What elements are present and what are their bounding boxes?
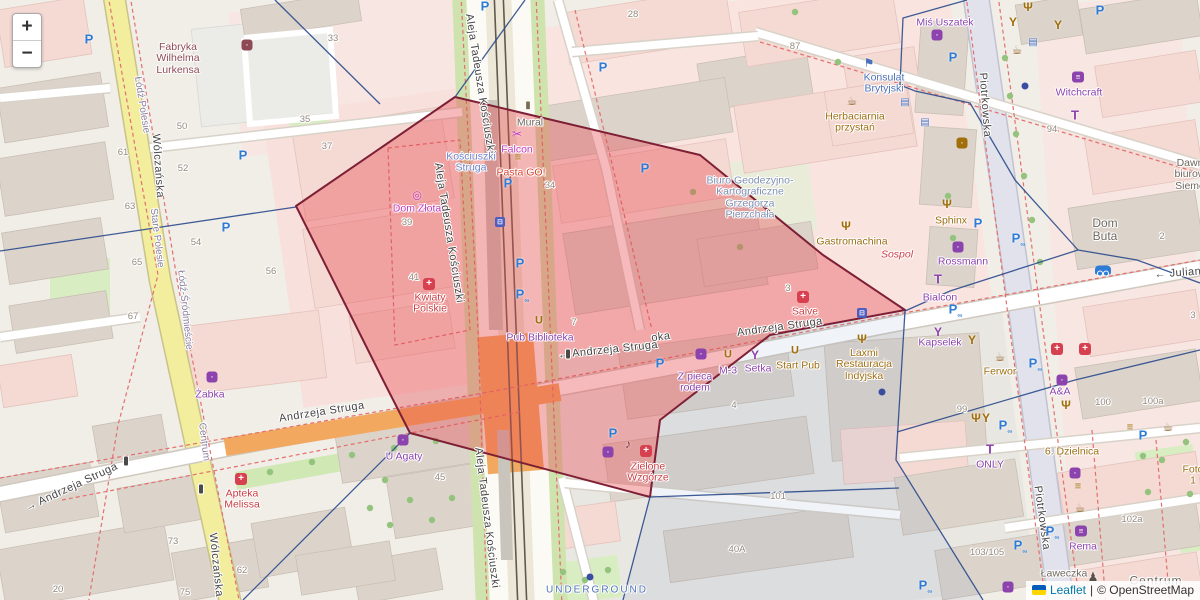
housenumber-label: 4 bbox=[731, 401, 736, 411]
housenumber-label: 87 bbox=[790, 42, 801, 52]
zoom-in-button[interactable]: + bbox=[13, 14, 41, 41]
admin-boundary-label: Stare Polesie bbox=[147, 208, 165, 268]
poi-label: Żabka bbox=[195, 389, 224, 400]
poi-label: Zielone Wzgórze bbox=[627, 462, 668, 485]
poi-label: UNDERGROUND bbox=[546, 586, 648, 597]
zoom-control[interactable]: + − bbox=[12, 13, 42, 68]
jewelry-icon: ◎ bbox=[412, 191, 422, 202]
poi-label: Kapselek bbox=[918, 337, 961, 348]
ukraine-flag-icon bbox=[1032, 585, 1046, 595]
bar-icon: Y bbox=[934, 326, 942, 338]
housenumber-label: 100 bbox=[1095, 398, 1111, 408]
housenumber-label: 73 bbox=[168, 537, 179, 547]
shop-icon: ▫ bbox=[696, 349, 707, 360]
music-shop-icon: ♪ bbox=[625, 438, 631, 450]
parking-icon: P bbox=[949, 51, 958, 64]
restaurant-icon: Ψ bbox=[857, 333, 867, 345]
housenumber-label: 39 bbox=[402, 218, 413, 228]
admin-boundary-label: Centrum bbox=[195, 422, 210, 461]
housenumber-label: 103/105 bbox=[970, 548, 1004, 558]
parking-icon: P bbox=[504, 177, 513, 190]
poi-label: Sphinx bbox=[935, 215, 967, 226]
poi-dot-icon bbox=[879, 389, 886, 396]
poi-label: Witchcraft bbox=[1056, 87, 1103, 98]
fastfood-icon: ≡ bbox=[1075, 482, 1081, 493]
housenumber-label: 2 bbox=[1159, 232, 1164, 242]
clothes-shop-icon: T bbox=[934, 273, 942, 286]
housenumber-label: 101 bbox=[770, 492, 786, 502]
housenumber-label: 75 bbox=[180, 588, 191, 598]
housenumber-label: 28 bbox=[628, 10, 639, 20]
bike-parking-icon: P∞ bbox=[949, 303, 962, 320]
poi-label: Kwiaty Polskie bbox=[413, 293, 447, 316]
poi-label: Fabryka Wilhelma Lurkensa bbox=[156, 42, 199, 76]
housenumber-label: 56 bbox=[266, 267, 277, 277]
transit-stop-icon: ⊟ bbox=[495, 217, 505, 227]
poi-dot-icon bbox=[1022, 83, 1029, 90]
housenumber-label: 99 bbox=[957, 405, 968, 415]
poi-dot-icon bbox=[587, 574, 594, 581]
admin-boundary-label: Łódź Polesie bbox=[131, 76, 151, 134]
consulate-flag-icon: ⚑ bbox=[864, 57, 875, 69]
pharmacy-icon: + bbox=[797, 291, 809, 303]
clothes-shop-icon: T bbox=[986, 443, 994, 456]
transit-stop-icon: ⊟ bbox=[857, 308, 867, 318]
street-label: Wólczańska bbox=[149, 134, 165, 199]
parking-icon: P bbox=[974, 217, 983, 230]
poi-label: M-3 bbox=[719, 365, 737, 376]
bar-icon: Y bbox=[1009, 16, 1017, 28]
poi-label: Pub Biblioteka bbox=[506, 332, 573, 343]
poi-label: Gastromachina bbox=[816, 236, 887, 247]
leaflet-map-canvas[interactable]: WólczańskaWólczańskaAleja Tadeusza Kości… bbox=[0, 0, 1200, 600]
leaflet-link[interactable]: Leaflet bbox=[1050, 583, 1086, 597]
cafe-icon: ☕ bbox=[1075, 502, 1086, 514]
pharmacy-icon: + bbox=[423, 278, 435, 290]
drink-icon: U bbox=[724, 350, 732, 361]
shop-icon: ▫ bbox=[603, 447, 614, 458]
housenumber-label: 102a bbox=[1121, 515, 1142, 525]
poi-label: Dawn biurow Sieme bbox=[1175, 158, 1200, 192]
cafe-icon: ☕ bbox=[1012, 44, 1023, 56]
pharmacy-icon: + bbox=[640, 445, 652, 457]
poi-label: Foto 1 bbox=[1182, 465, 1200, 488]
map-labels-layer: WólczańskaWólczańskaAleja Tadeusza Kości… bbox=[0, 0, 1200, 600]
parking-icon: P bbox=[609, 427, 618, 440]
street-label: → Andrzeja Struga bbox=[24, 461, 120, 514]
shop-icon: ▫ bbox=[1003, 582, 1014, 593]
housenumber-label: 45 bbox=[435, 473, 446, 483]
housenumber-label: 94 bbox=[1047, 125, 1058, 135]
street-label: Wólczańska bbox=[206, 532, 225, 597]
poi-label: Apteka Melissa bbox=[224, 489, 260, 512]
zoom-out-button[interactable]: − bbox=[13, 41, 41, 67]
attribution-separator: | bbox=[1090, 583, 1093, 597]
poi-label: A&A bbox=[1049, 386, 1070, 397]
housenumber-label: 63 bbox=[125, 202, 136, 212]
monument-icon: ▮ bbox=[525, 101, 531, 111]
parking-icon: P bbox=[239, 149, 248, 162]
cafe-icon: ☕ bbox=[1163, 421, 1174, 433]
parking-icon: P bbox=[85, 33, 94, 46]
poi-label: Z pieca rodem bbox=[678, 372, 712, 395]
drink-icon: U bbox=[535, 316, 543, 327]
parking-icon: P bbox=[599, 61, 608, 74]
poi-label: Salve bbox=[792, 306, 818, 317]
restaurant-icon: Ψ bbox=[841, 220, 851, 232]
poi-label: Biuro Geodezyjno- Kartograficzne Grzegor… bbox=[707, 175, 794, 220]
shop-icon: ▫ bbox=[207, 372, 218, 383]
bike-parking-icon: P∞ bbox=[919, 579, 932, 596]
poi-label: Setka bbox=[745, 363, 772, 374]
pharmacy-icon: + bbox=[235, 473, 247, 485]
fastfood-icon: ≡ bbox=[515, 153, 521, 164]
poi-label: Rossmann bbox=[938, 256, 988, 267]
housenumber-label: 100a bbox=[1142, 397, 1163, 407]
poi-label: Konsulat Brytyjski bbox=[864, 73, 905, 96]
poi-label: Miś Uszatek bbox=[916, 17, 973, 28]
poi-label: Ferwor bbox=[984, 366, 1017, 377]
poi-label: Rema bbox=[1069, 541, 1097, 552]
housenumber-label: 34 bbox=[545, 181, 556, 191]
shop-icon: ▫ bbox=[1070, 468, 1081, 479]
parking-icon: P bbox=[516, 257, 525, 270]
bar-icon: Y bbox=[982, 412, 990, 424]
poi-label: U Agaty bbox=[386, 451, 423, 462]
car-rental-icon bbox=[1095, 266, 1111, 275]
housenumber-label: 33 bbox=[328, 34, 339, 44]
housenumber-label: 50 bbox=[177, 122, 188, 132]
housenumber-label: 41 bbox=[409, 273, 420, 283]
restaurant-icon: Ψ bbox=[1023, 1, 1033, 13]
housenumber-label: 67 bbox=[128, 312, 139, 322]
bookshop-icon: ≡ bbox=[1075, 526, 1087, 537]
bike-parking-icon: P∞ bbox=[1014, 539, 1027, 556]
cafe-icon: ☕ bbox=[995, 351, 1006, 363]
street-label: Piotrkowska bbox=[976, 72, 992, 137]
poi-label: Dom Buta bbox=[1092, 217, 1117, 243]
traffic-signal-icon bbox=[199, 485, 203, 494]
restaurant-icon: Ψ bbox=[971, 412, 981, 424]
hairdresser-icon: ✂ bbox=[512, 128, 522, 140]
housenumber-label: 65 bbox=[132, 258, 143, 268]
parking-icon: P bbox=[481, 0, 490, 13]
bar-icon: Y bbox=[751, 349, 759, 361]
parking-icon: P bbox=[222, 221, 231, 234]
drink-icon: U bbox=[791, 346, 799, 357]
restaurant-icon: Ψ bbox=[1061, 399, 1071, 411]
poi-label: 6. Dzielnica bbox=[1045, 446, 1099, 457]
poi-label: Ławeczka bbox=[1041, 568, 1088, 579]
parking-icon: P bbox=[656, 357, 665, 370]
housenumber-label: 54 bbox=[191, 238, 202, 248]
atm-icon: ▤ bbox=[900, 98, 909, 108]
housenumber-label: 61 bbox=[118, 148, 129, 158]
street-label: Andrzeja Struga bbox=[736, 316, 823, 340]
poi-label: Dom Złota bbox=[393, 203, 441, 214]
housenumber-label: 3 bbox=[785, 284, 790, 294]
openstreetmap-link[interactable]: © OpenStreetMap bbox=[1097, 583, 1194, 597]
bar-icon: Y bbox=[968, 334, 976, 346]
poi-label: Herbaciarnia przystań bbox=[825, 112, 885, 135]
street-label: Aleja Tadeusza Kościuszki bbox=[471, 447, 500, 589]
bike-parking-icon: P∞ bbox=[516, 288, 529, 305]
housenumber-label: 62 bbox=[237, 566, 248, 576]
housenumber-label: 37 bbox=[322, 142, 333, 152]
traffic-signal-icon bbox=[566, 350, 570, 359]
street-label: ← Julian bbox=[1154, 266, 1200, 281]
poi-label: Sospol bbox=[881, 249, 913, 260]
poi-label: Start Pub bbox=[776, 360, 820, 371]
parking-icon: P bbox=[1139, 429, 1148, 442]
cafe-icon: ☕ bbox=[847, 95, 858, 107]
bar-icon: Y bbox=[1054, 19, 1062, 31]
pharmacy-icon: + bbox=[1051, 343, 1063, 355]
bookshop-icon: ≡ bbox=[1072, 72, 1084, 83]
traffic-signal-icon bbox=[124, 457, 128, 466]
housenumber-label: 40A bbox=[729, 545, 746, 555]
bike-parking-icon: P∞ bbox=[1046, 525, 1059, 542]
street-label: Andrzeja Struga bbox=[278, 400, 365, 425]
poi-label: Kościuszki Struga bbox=[446, 152, 496, 175]
atm-icon: ▤ bbox=[920, 118, 929, 128]
street-label: Aleja Tadeusza Kościuszki bbox=[431, 162, 465, 304]
housenumber-label: 7 bbox=[571, 318, 576, 328]
atm-icon: ▤ bbox=[1028, 38, 1037, 48]
housenumber-label: 35 bbox=[300, 115, 311, 125]
fastfood-icon: ≡ bbox=[1127, 423, 1133, 434]
street-label: oka bbox=[651, 331, 672, 345]
shop-icon: ▫ bbox=[1057, 375, 1068, 386]
housenumber-label: 3 bbox=[1190, 311, 1195, 321]
admin-boundary-label: Łódź-Śródmieście bbox=[174, 270, 193, 351]
parking-icon: P bbox=[641, 162, 650, 175]
housenumber-label: 52 bbox=[178, 164, 189, 174]
attribution-bar: Leaflet | © OpenStreetMap bbox=[1026, 581, 1200, 600]
poi-label: Laxmi Restauracja Indyjska bbox=[836, 348, 892, 382]
shop-icon: ▫ bbox=[953, 242, 964, 253]
parking-icon: P bbox=[1096, 4, 1105, 17]
poi-label: ONLY bbox=[976, 459, 1004, 470]
restaurant-icon: Ψ bbox=[942, 198, 952, 210]
shop-icon: ▫ bbox=[932, 30, 943, 41]
clothes-shop-icon: T bbox=[1071, 109, 1079, 122]
street-label: Aleja Tadeusza Kościuszki bbox=[462, 13, 496, 155]
shop-icon: ▫ bbox=[957, 138, 968, 149]
shop-icon: ▫ bbox=[242, 40, 253, 51]
pharmacy-icon: + bbox=[1079, 343, 1091, 355]
bike-parking-icon: P∞ bbox=[1029, 357, 1042, 374]
bike-parking-icon: P∞ bbox=[1012, 232, 1025, 249]
bike-parking-icon: P∞ bbox=[999, 419, 1012, 436]
housenumber-label: 20 bbox=[53, 585, 64, 595]
shop-icon: ▫ bbox=[398, 435, 409, 446]
